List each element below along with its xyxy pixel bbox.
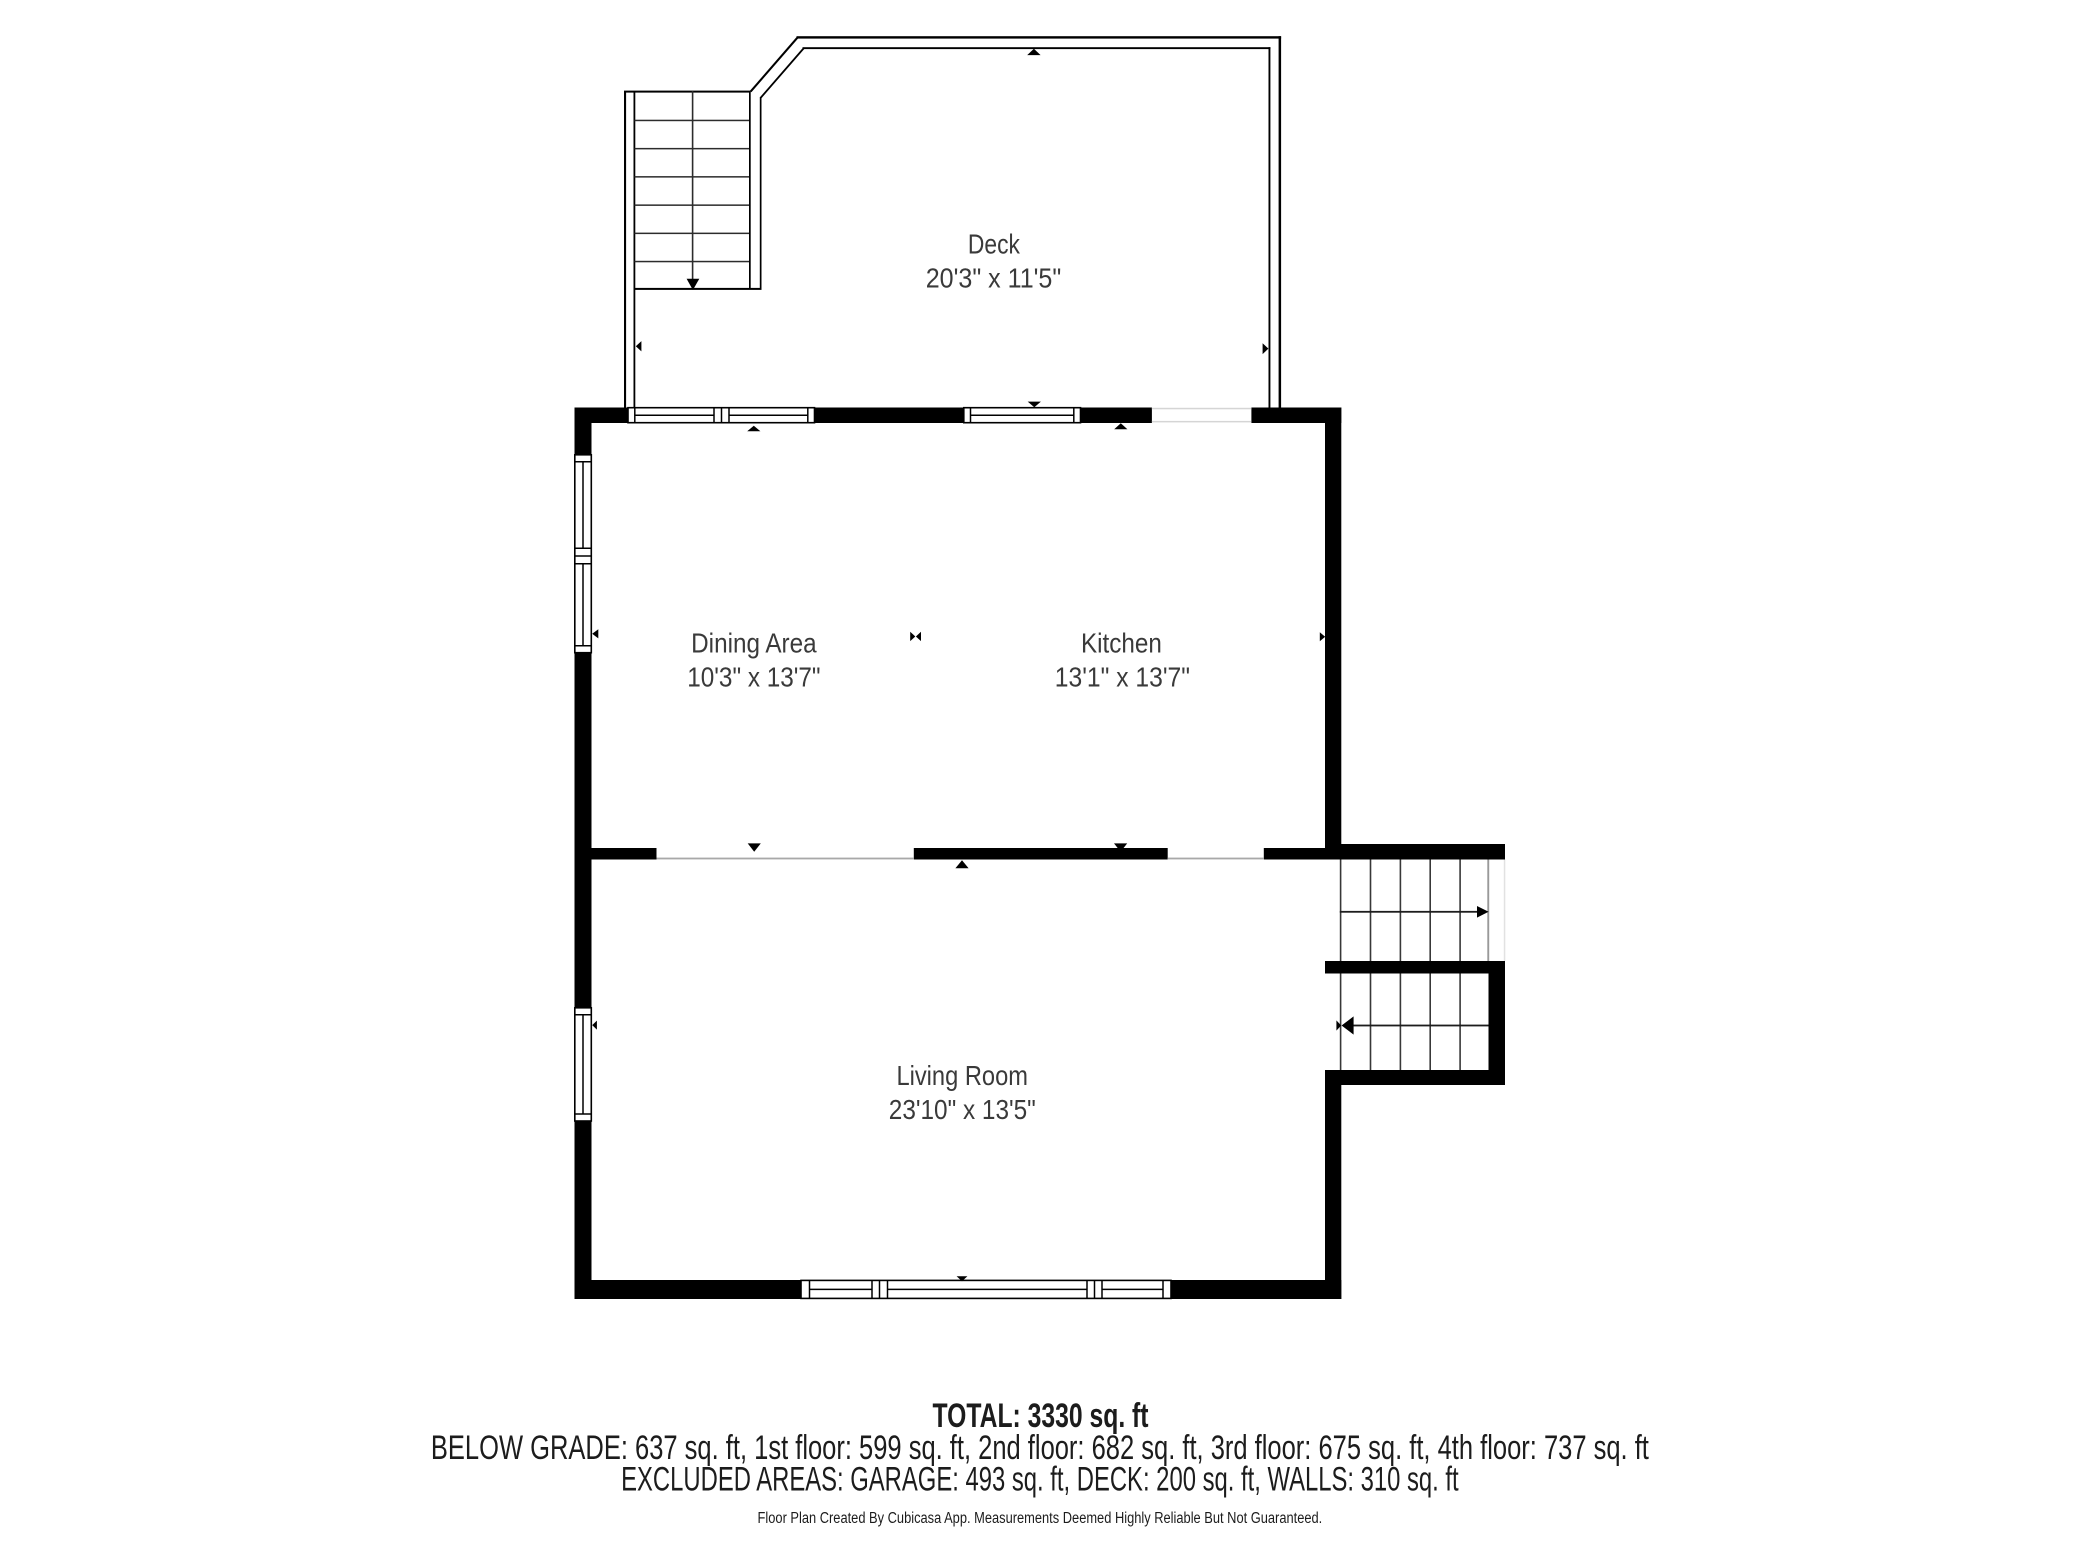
svg-text:Living Room: Living Room — [896, 1060, 1028, 1091]
svg-text:EXCLUDED AREAS: GARAGE: 493 sq: EXCLUDED AREAS: GARAGE: 493 sq. ft, DECK… — [621, 1461, 1459, 1499]
svg-text:Deck: Deck — [968, 228, 1021, 259]
svg-text:10'3" x 13'7": 10'3" x 13'7" — [687, 662, 820, 693]
svg-text:20'3" x 11'5": 20'3" x 11'5" — [926, 262, 1062, 293]
svg-text:Dining Area: Dining Area — [691, 628, 817, 659]
svg-text:13'1" x 13'7": 13'1" x 13'7" — [1055, 662, 1190, 693]
svg-text:Floor Plan Created By Cubicasa: Floor Plan Created By Cubicasa App. Meas… — [758, 1510, 1323, 1527]
svg-text:Kitchen: Kitchen — [1081, 628, 1162, 659]
svg-text:23'10" x 13'5": 23'10" x 13'5" — [889, 1094, 1036, 1125]
